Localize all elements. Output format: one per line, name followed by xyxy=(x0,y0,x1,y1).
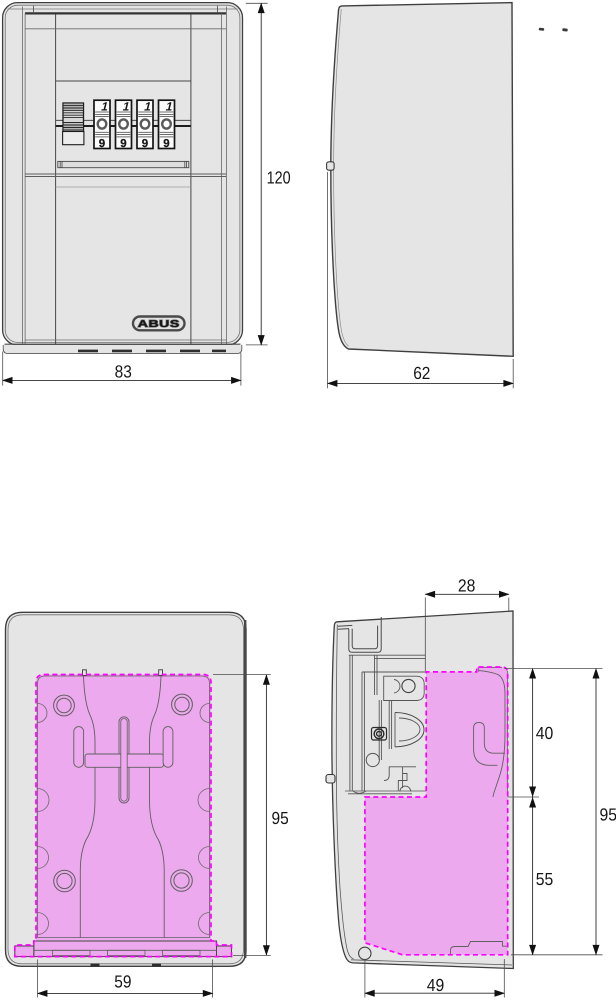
svg-text:62: 62 xyxy=(413,363,430,383)
svg-text:120: 120 xyxy=(267,167,291,187)
svg-text:9: 9 xyxy=(99,138,105,150)
svg-text:40: 40 xyxy=(536,723,554,743)
svg-text:83: 83 xyxy=(115,361,132,381)
svg-text:ABUS: ABUS xyxy=(138,319,180,330)
svg-text:9: 9 xyxy=(120,138,126,150)
svg-text:55: 55 xyxy=(536,869,554,889)
svg-text:95: 95 xyxy=(600,805,616,825)
svg-text:95: 95 xyxy=(272,808,289,828)
svg-text:9: 9 xyxy=(142,138,148,150)
svg-text:59: 59 xyxy=(114,971,131,991)
svg-text:49: 49 xyxy=(427,975,445,995)
svg-text:28: 28 xyxy=(458,576,476,596)
svg-text:9: 9 xyxy=(163,138,169,150)
